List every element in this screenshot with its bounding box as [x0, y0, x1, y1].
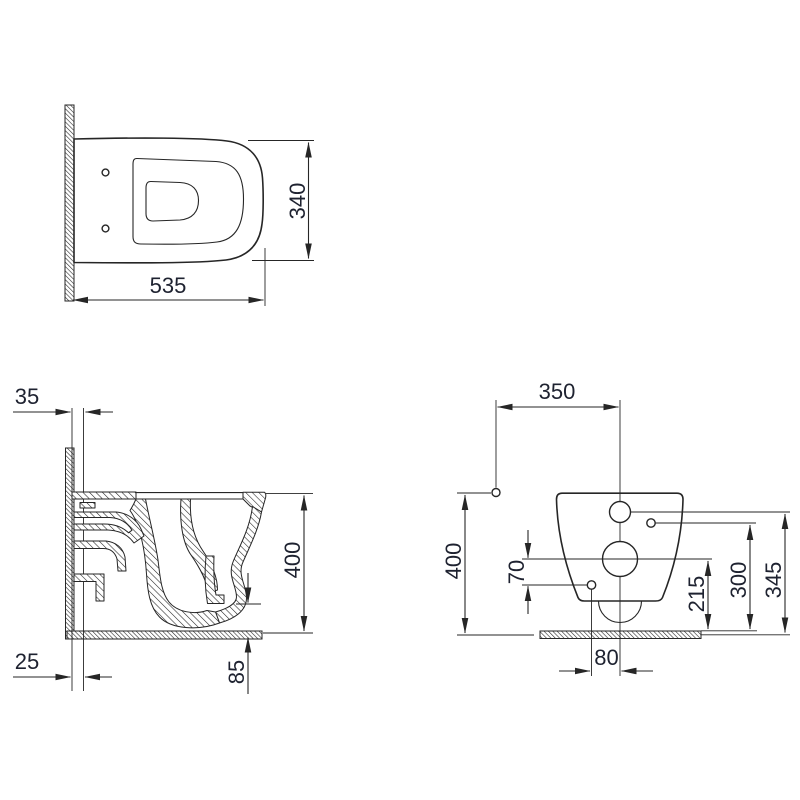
wall-hatch-top-view: [65, 105, 74, 301]
dim-side-height: 400: [280, 542, 305, 579]
dim-outlet-bottom: 85: [224, 660, 249, 684]
technical-drawing-sheet: 340 535 35 25 400: [0, 0, 800, 800]
dim-drain-height: 215: [684, 576, 709, 613]
dim-overall-depth: 340: [285, 183, 310, 220]
dim-side-hole-height: 300: [726, 562, 751, 599]
floor-hatch-front-view: [540, 631, 701, 639]
rim-section: [72, 492, 136, 499]
floor-hatch-side-view: [67, 631, 262, 639]
fixing-hole-left: [587, 581, 595, 589]
fixing-hole-right: [647, 519, 655, 527]
dim-inlet-height: 345: [761, 562, 786, 599]
dim-front-height: 400: [441, 543, 466, 580]
sheet-background: [0, 0, 800, 800]
fixing-lug-section: [80, 503, 95, 509]
wc-dimension-drawing: 340 535 35 25 400: [0, 0, 800, 800]
dim-hole-offset: 80: [594, 645, 618, 670]
wall-hatch-side-view: [66, 448, 75, 639]
dim-overall-width: 535: [150, 273, 187, 298]
dim-wall-offset-top: 35: [15, 384, 39, 409]
seat-fixing-hole-bottom: [102, 225, 109, 232]
water-inlet-hole: [610, 502, 631, 523]
seat-fixing-hole-top: [102, 169, 109, 176]
dim-hole-spacing: 70: [504, 560, 529, 584]
fixing-reference-point: [492, 489, 500, 497]
dim-wall-offset-bottom: 25: [15, 649, 39, 674]
dim-fixing-width: 350: [539, 379, 576, 404]
